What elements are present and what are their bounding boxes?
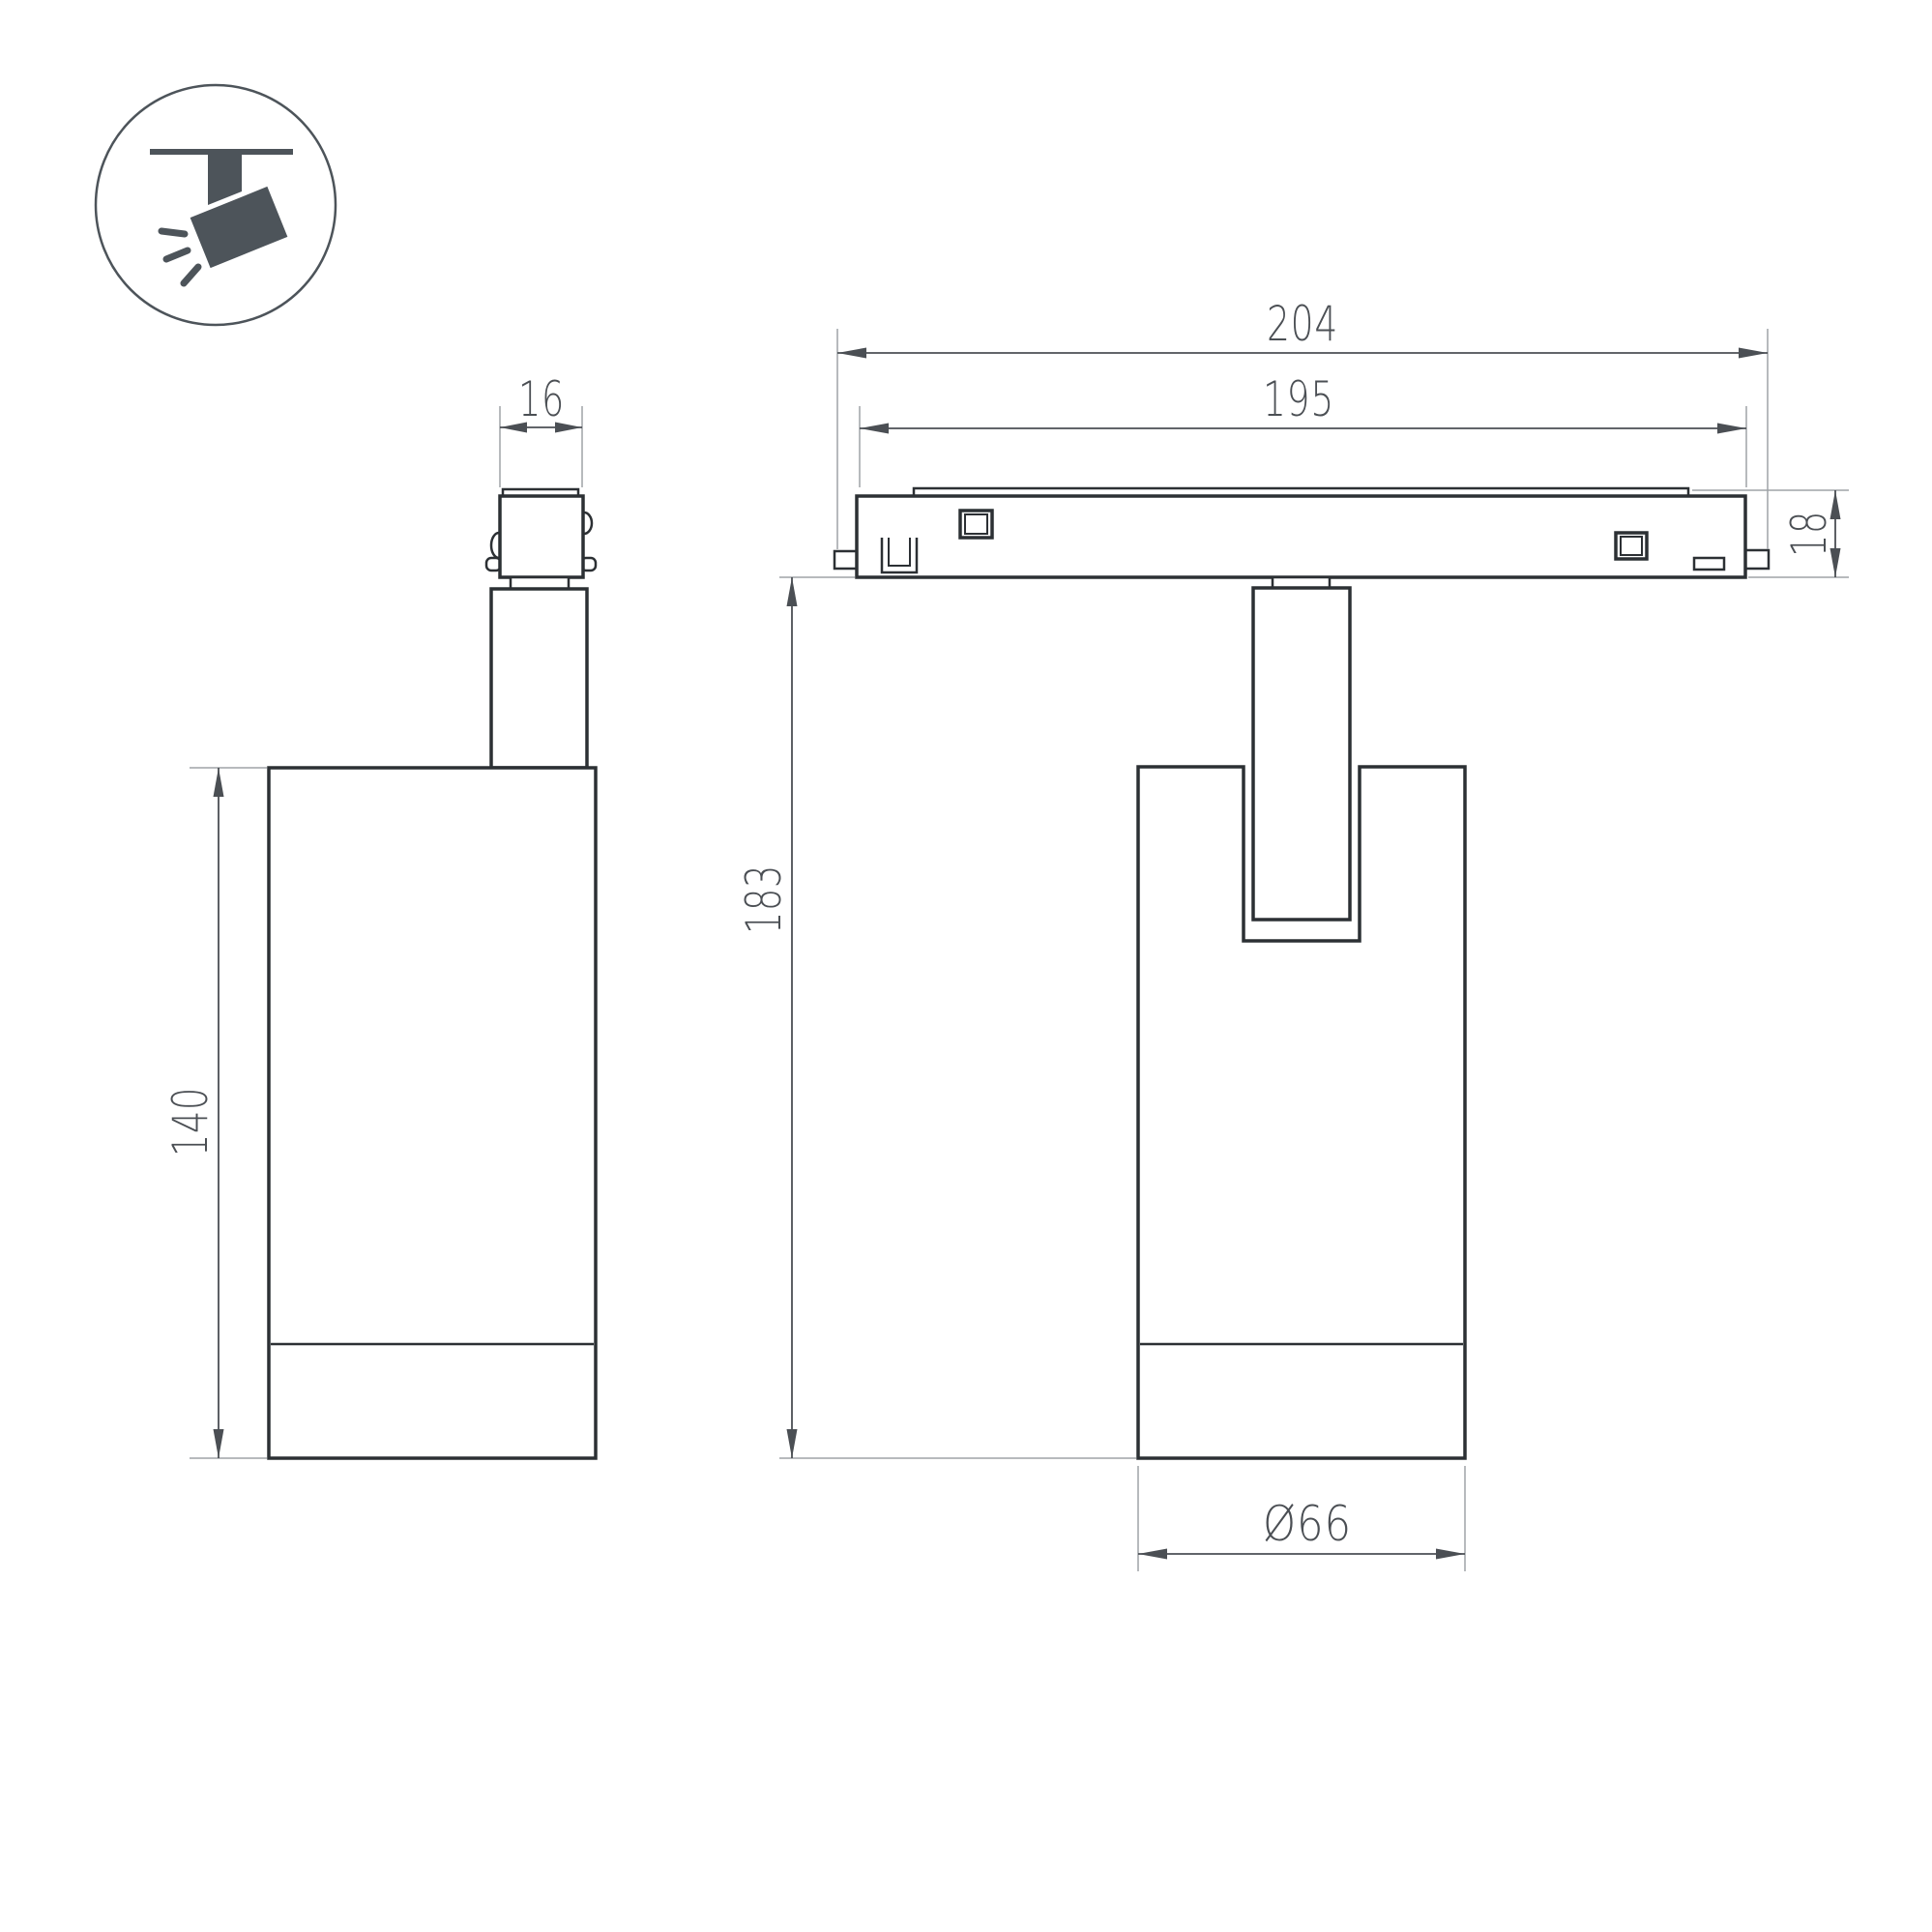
dimension-body-height: 140 — [162, 768, 267, 1458]
side-view — [269, 489, 596, 1458]
track-left-tab — [834, 551, 857, 569]
dimension-label: 195 — [1263, 371, 1334, 427]
dimension-drawing-page: 16 140 204 — [0, 0, 1932, 1932]
lamp-body — [269, 768, 596, 1458]
stem — [1253, 588, 1350, 920]
dimension-label: 140 — [162, 1087, 219, 1156]
icon-ceiling-bar — [150, 149, 293, 155]
dimension-label: 183 — [736, 864, 792, 934]
track-connector — [500, 496, 583, 577]
track-spotlight-icon — [96, 85, 336, 325]
icon-light-ray — [161, 231, 185, 234]
track-slot — [1694, 558, 1724, 570]
dimension-overall-height: 183 — [736, 577, 1136, 1458]
dimension-label: 16 — [518, 371, 565, 427]
dimension-body-diameter: Ø66 — [1138, 1466, 1465, 1571]
dimension-label: 204 — [1267, 296, 1338, 352]
connector-neck — [511, 577, 569, 589]
dimension-track-length-inner: 195 — [860, 371, 1746, 487]
stem — [491, 589, 587, 768]
dimension-label: Ø66 — [1263, 1496, 1352, 1552]
front-view — [834, 488, 1769, 1458]
dimension-label: 18 — [1781, 511, 1837, 557]
technical-drawing: 16 140 204 — [0, 0, 1932, 1932]
track-right-tab — [1745, 550, 1769, 569]
icon-circle — [96, 85, 336, 325]
dimension-connector-width: 16 — [500, 371, 582, 487]
